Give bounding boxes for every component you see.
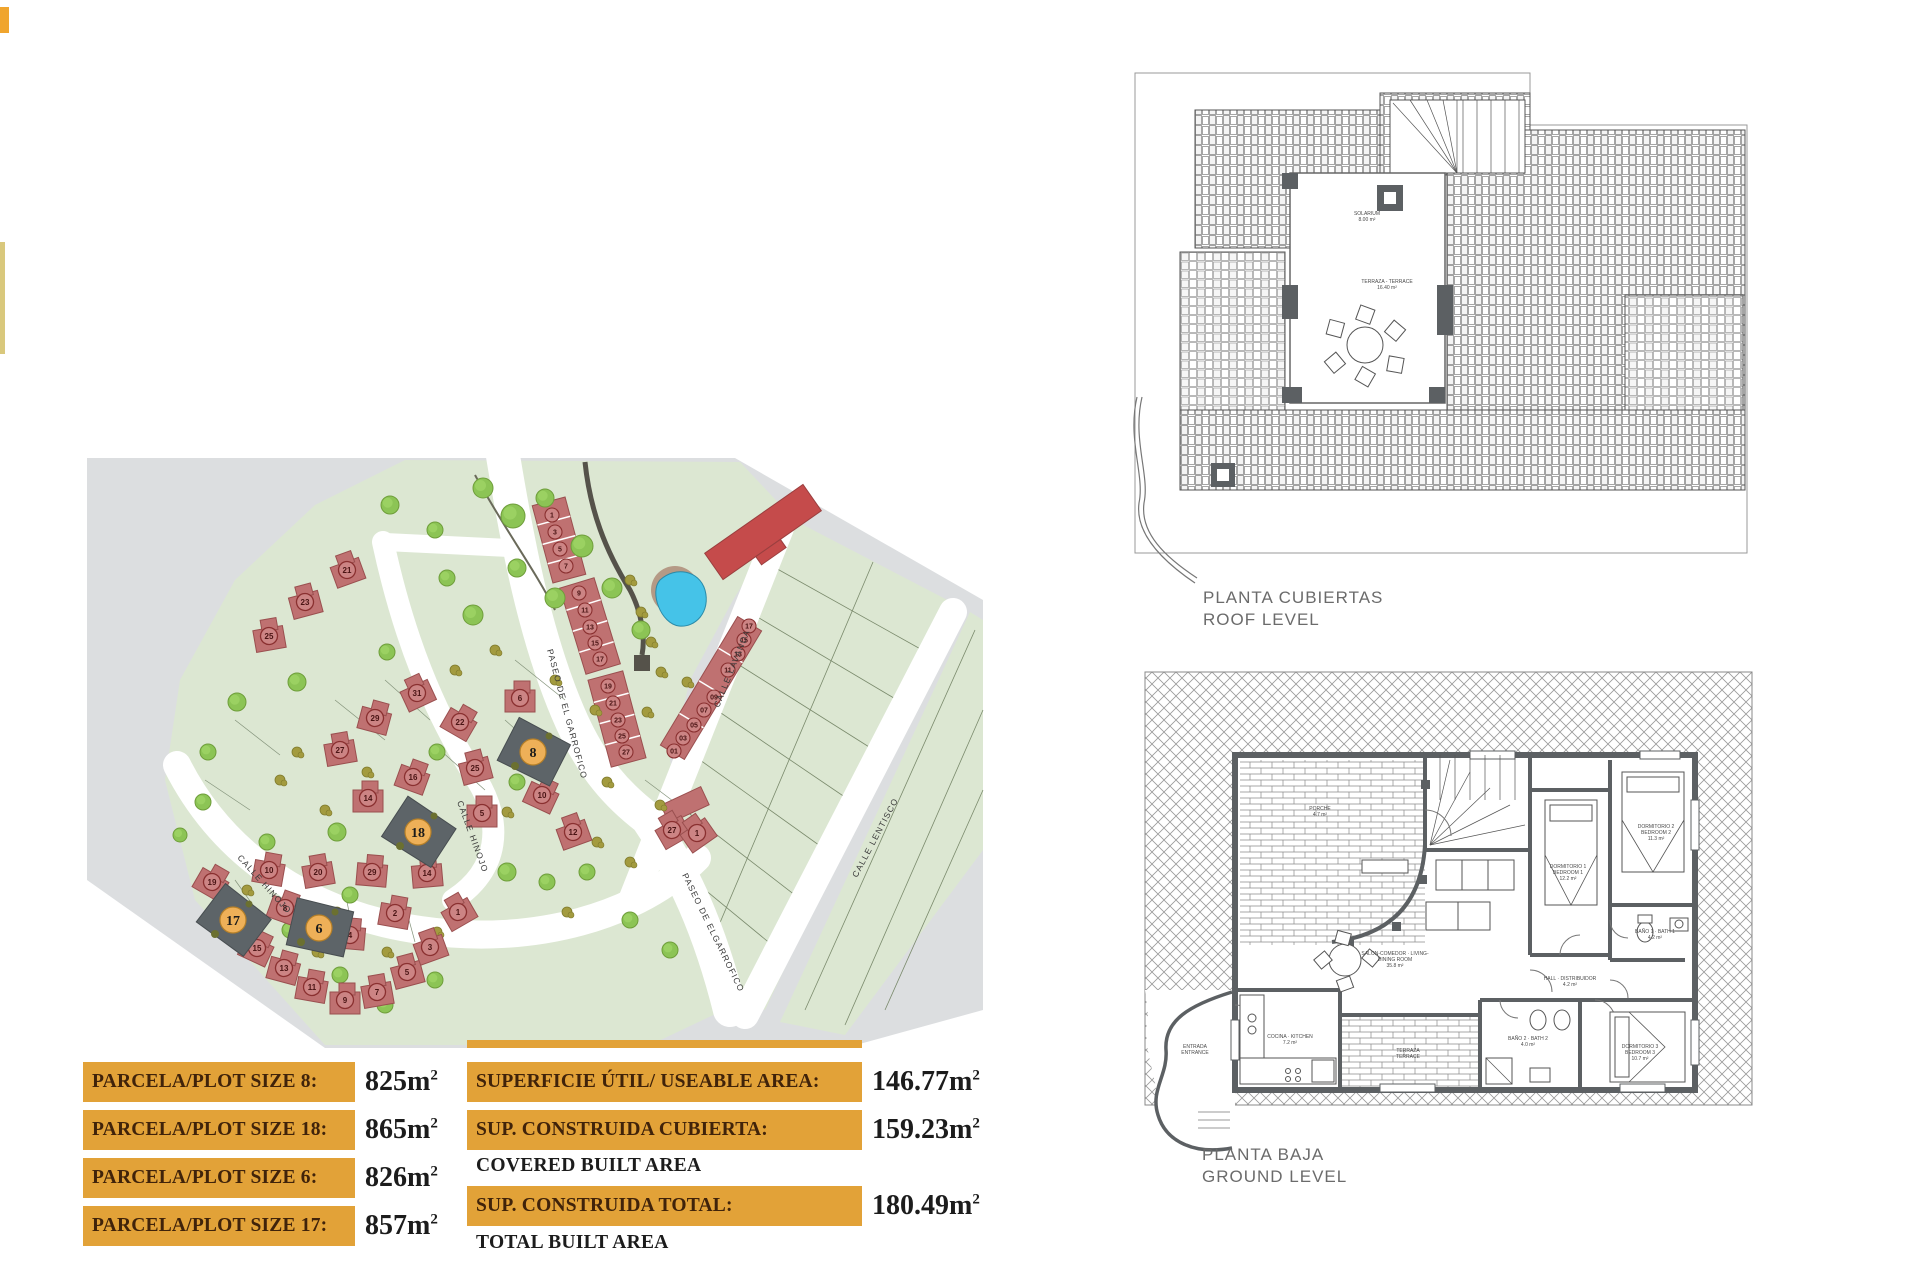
svg-text:25: 25 (265, 632, 274, 641)
roof-title-en: ROOF LEVEL (1203, 610, 1320, 629)
area-label-box: SUPERFICIE ÚTIL/ USEABLE AREA: (467, 1062, 862, 1102)
plot-size-value: 865m2 (365, 1114, 438, 1146)
plot-size-value: 825m2 (365, 1066, 438, 1098)
area-subnote: COVERED BUILT AREA (476, 1155, 701, 1177)
svg-text:5: 5 (558, 547, 562, 554)
area-value: 180.49m2 (872, 1190, 980, 1222)
tree-icon (545, 588, 565, 608)
svg-text:29: 29 (368, 868, 377, 877)
svg-text:22: 22 (456, 718, 465, 727)
svg-text:25: 25 (471, 764, 480, 773)
svg-text:23: 23 (301, 598, 310, 607)
svg-text:15: 15 (591, 641, 599, 648)
tree-icon (602, 578, 622, 598)
svg-text:17: 17 (226, 914, 240, 929)
svg-text:10: 10 (538, 791, 547, 800)
area-label: SUPERFICIE ÚTIL/ USEABLE AREA: (476, 1071, 820, 1093)
page-edge-yellow-strip (0, 242, 5, 354)
area-row: SUPERFICIE ÚTIL/ USEABLE AREA: 146.77m2 (467, 1062, 980, 1102)
svg-text:31: 31 (413, 689, 422, 698)
tree-icon (259, 834, 275, 850)
townhouse-number: 9 (572, 586, 586, 600)
svg-text:19: 19 (604, 684, 612, 691)
townhouse-number: 17 (593, 652, 607, 666)
plot-size-label: PARCELA/PLOT SIZE 6: (92, 1167, 317, 1189)
site-plan-map: 3129271614226251051210202914191513119753… (85, 450, 985, 1050)
area-label: SUP. CONSTRUIDA TOTAL: (476, 1195, 733, 1217)
svg-text:11: 11 (581, 608, 589, 615)
svg-text:25: 25 (618, 734, 626, 741)
svg-text:1: 1 (695, 829, 700, 838)
townhouse-number: 27 (619, 745, 633, 759)
svg-text:7: 7 (564, 564, 568, 571)
tree-icon (509, 774, 525, 790)
svg-text:9: 9 (343, 996, 348, 1005)
plot-size-row: PARCELA/PLOT SIZE 6: 826m2 (83, 1158, 438, 1198)
townhouse-number: 15 (588, 636, 602, 650)
tree-icon (579, 864, 595, 880)
tree-icon (662, 942, 678, 958)
svg-text:6: 6 (316, 922, 323, 937)
tree-icon (173, 828, 187, 842)
svg-text:23: 23 (614, 718, 622, 725)
page-edge-orange-square (0, 7, 9, 33)
roof-terrace (1282, 173, 1453, 403)
townhouse-number: 13 (583, 620, 597, 634)
svg-text:13: 13 (586, 625, 594, 632)
svg-text:27: 27 (668, 826, 677, 835)
svg-text:14: 14 (364, 794, 373, 803)
svg-text:10: 10 (265, 866, 274, 875)
area-value: 159.23m2 (872, 1114, 980, 1146)
svg-text:20: 20 (314, 868, 323, 877)
svg-text:01: 01 (670, 749, 678, 756)
roof-table (1347, 327, 1383, 363)
area-label-box: SUP. CONSTRUIDA TOTAL: (467, 1186, 862, 1226)
svg-text:5: 5 (480, 809, 485, 818)
plot-size-row: PARCELA/PLOT SIZE 8: 825m2 (83, 1062, 438, 1102)
tree-icon (427, 522, 443, 538)
area-value: 146.77m2 (872, 1066, 980, 1098)
svg-text:07: 07 (700, 708, 708, 715)
townhouse-number: 1 (545, 508, 559, 522)
area-label: SUP. CONSTRUIDA CUBIERTA: (476, 1119, 768, 1141)
svg-text:05: 05 (690, 723, 698, 730)
svg-text:1: 1 (456, 908, 461, 917)
svg-text:21: 21 (343, 566, 352, 575)
room-label: TERRAZATERRACE (1396, 1048, 1421, 1060)
tree-icon (498, 863, 516, 881)
brochure-page: 3129271614226251051210202914191513119753… (0, 0, 1920, 1280)
plot-size-label-box: PARCELA/PLOT SIZE 17: (83, 1206, 355, 1246)
plot-size-label-box: PARCELA/PLOT SIZE 18: (83, 1110, 355, 1150)
townhouse-number: 5 (553, 542, 567, 556)
plot-size-label-box: PARCELA/PLOT SIZE 8: (83, 1062, 355, 1102)
svg-text:1: 1 (550, 513, 554, 520)
svg-text:27: 27 (336, 746, 345, 755)
tree-icon (473, 478, 493, 498)
tree-icon (439, 570, 455, 586)
svg-text:3: 3 (553, 530, 557, 537)
tree-icon (463, 605, 483, 625)
svg-text:03: 03 (679, 736, 687, 743)
plot-size-label: PARCELA/PLOT SIZE 8: (92, 1071, 317, 1093)
plot-size-label: PARCELA/PLOT SIZE 17: (92, 1215, 327, 1237)
townhouse-number: 07 (697, 703, 711, 717)
gate-post-center (1217, 469, 1229, 481)
townhouse-number: 7 (559, 559, 573, 573)
tree-icon (379, 644, 395, 660)
roof-title-es: PLANTA CUBIERTAS (1203, 588, 1383, 607)
svg-text:27: 27 (622, 750, 630, 757)
svg-text:3: 3 (428, 943, 433, 952)
tree-icon (632, 621, 650, 639)
plot-size-row: PARCELA/PLOT SIZE 17: 857m2 (83, 1206, 438, 1246)
tree-icon (622, 912, 638, 928)
tree-icon (501, 504, 525, 528)
svg-text:14: 14 (423, 869, 432, 878)
tree-icon (342, 887, 358, 903)
area-row: SUP. CONSTRUIDA CUBIERTA: 159.23m2 (467, 1110, 980, 1150)
townhouse-number: 19 (601, 679, 615, 693)
svg-text:15: 15 (253, 944, 262, 953)
plot-size-value: 857m2 (365, 1210, 438, 1242)
svg-text:11: 11 (308, 983, 317, 992)
townhouse-number: 05 (687, 718, 701, 732)
svg-text:18: 18 (411, 826, 425, 841)
svg-text:21: 21 (609, 701, 617, 708)
svg-text:9: 9 (577, 591, 581, 598)
plot-size-label-box: PARCELA/PLOT SIZE 6: (83, 1158, 355, 1198)
townhouse-number: 23 (611, 713, 625, 727)
area-row: SUP. CONSTRUIDA TOTAL: 180.49m2 (467, 1186, 980, 1226)
townhouse-number: 21 (606, 696, 620, 710)
tree-icon (429, 744, 445, 760)
entrance-area (1145, 990, 1235, 1166)
svg-text:19: 19 (208, 878, 217, 887)
tree-icon (228, 693, 246, 711)
townhouse-number: 03 (676, 731, 690, 745)
townhouse-number: 25 (615, 729, 629, 743)
townhouse-number: 11 (578, 603, 592, 617)
tree-icon (200, 744, 216, 760)
svg-text:2: 2 (393, 909, 398, 918)
tree-icon (427, 972, 443, 988)
room-label: ENTRADAENTRANCE (1181, 1044, 1209, 1056)
tree-icon (508, 559, 526, 577)
tree-icon (381, 496, 399, 514)
tree-icon (288, 673, 306, 691)
ground-title-es: PLANTA BAJA (1202, 1145, 1324, 1164)
roof-stairs (1390, 100, 1525, 173)
roof-plan: SOLARIUM8.00 m²TERRAZA - TERRACE16.40 m²… (1125, 45, 1775, 640)
tree-icon (571, 535, 593, 557)
townhouse-number: 3 (548, 525, 562, 539)
area-subnote: TOTAL BUILT AREA (476, 1232, 669, 1254)
plot-size-label: PARCELA/PLOT SIZE 18: (92, 1119, 327, 1141)
ground-plan: SALON-COMEDOR · LIVING-DINING ROOM35.8 m… (1140, 660, 1780, 1220)
svg-text:6: 6 (518, 694, 523, 703)
svg-text:8: 8 (530, 746, 537, 761)
park-structure (634, 655, 650, 671)
svg-text:5: 5 (405, 968, 410, 977)
svg-text:16: 16 (409, 773, 418, 782)
svg-text:12: 12 (569, 828, 578, 837)
svg-text:13: 13 (280, 964, 289, 973)
tree-icon (328, 823, 346, 841)
svg-text:7: 7 (375, 988, 380, 997)
tree-icon (332, 967, 348, 983)
plot-size-row: PARCELA/PLOT SIZE 18: 865m2 (83, 1110, 438, 1150)
tree-icon (536, 489, 554, 507)
svg-text:17: 17 (596, 657, 604, 664)
plot-size-value: 826m2 (365, 1162, 438, 1194)
tree-icon (539, 874, 555, 890)
tree-icon (195, 794, 211, 810)
table-top-bar (467, 1040, 862, 1048)
townhouse-number: 01 (667, 744, 681, 758)
svg-text:29: 29 (371, 714, 380, 723)
ground-title-en: GROUND LEVEL (1202, 1167, 1347, 1186)
area-label-box: SUP. CONSTRUIDA CUBIERTA: (467, 1110, 862, 1150)
